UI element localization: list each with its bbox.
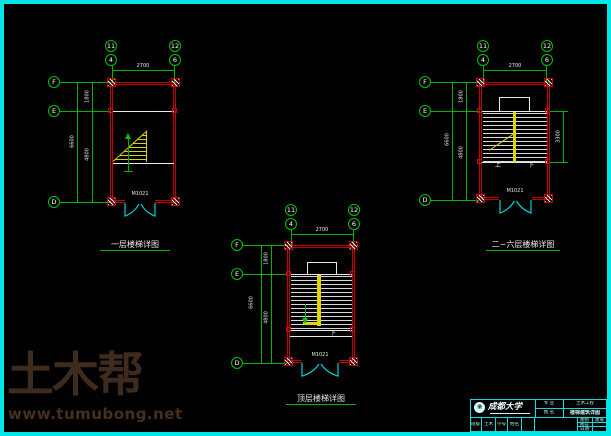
dimension-line — [550, 111, 568, 112]
column-hatch — [284, 241, 293, 250]
field-value: 土木工程 — [564, 401, 606, 406]
grid-line — [243, 274, 287, 275]
door-tag: M1021 — [307, 353, 333, 358]
dimension-line — [291, 234, 354, 235]
dimension-line — [483, 70, 547, 71]
grid-bubble-4: 4 — [105, 54, 117, 66]
column-marker — [172, 108, 177, 113]
grid-bubble-4: 4 — [477, 54, 489, 66]
grid-bubble-F: F — [48, 76, 60, 88]
title-block-line — [521, 417, 522, 431]
watermark-brand: 土木帮 — [7, 352, 142, 400]
column-marker — [286, 327, 291, 332]
dimension-text: 2700 — [309, 228, 335, 233]
stair-edge — [146, 131, 147, 162]
direction-tick — [124, 171, 133, 172]
dimension-chain — [271, 245, 272, 363]
grid-line — [60, 202, 110, 203]
grid-bubble-E: E — [231, 268, 243, 280]
landing-edge — [482, 162, 547, 163]
dimension-chain — [77, 82, 78, 202]
cad-sheet: 11 12 4 6 2700 F E D 1800 6600 4800 — [0, 0, 611, 436]
grid-bubble-6: 6 — [541, 54, 553, 66]
dimension-line — [112, 70, 175, 71]
dimension-text: 4800 — [265, 310, 270, 326]
dimension-text: 1800 — [265, 251, 270, 267]
dimension-text: 1800 — [86, 89, 91, 105]
dimension-text: 6600 — [250, 295, 255, 311]
grid-line — [243, 245, 287, 246]
grid-bubble-6: 6 — [348, 218, 360, 230]
column-hatch — [284, 357, 293, 366]
grid-line — [431, 200, 479, 201]
landing-edge — [113, 163, 174, 164]
grid-bubble-11: 11 — [285, 204, 297, 216]
dimension-text: 1800 — [460, 89, 465, 105]
watermark-url: www.tumubong.net — [8, 406, 183, 422]
column-hatch — [476, 194, 485, 203]
double-door-icon — [301, 363, 339, 380]
grid-bubble-4: 4 — [285, 218, 297, 230]
double-door-icon — [124, 203, 156, 220]
dimension-text: 2700 — [502, 64, 528, 69]
grid-bubble-6: 6 — [169, 54, 181, 66]
column-hatch — [171, 78, 180, 87]
grid-line — [431, 82, 479, 83]
landing-edge — [290, 330, 352, 331]
grid-bubble-E: E — [419, 105, 431, 117]
grid-bubble-F: F — [419, 76, 431, 88]
university-name: 成都大学 — [488, 402, 534, 412]
landing-edge — [290, 274, 352, 275]
dimension-text: 2700 — [130, 64, 156, 69]
column-marker — [477, 159, 482, 164]
grid-line — [60, 82, 110, 83]
bottom-cell: 土木 — [482, 422, 495, 427]
grid-bubble-E: E — [48, 105, 60, 117]
grid-bubble-D: D — [48, 196, 60, 208]
column-marker — [545, 108, 550, 113]
corner-label: 日期 — [578, 427, 591, 432]
field-label: 图 名 — [536, 410, 562, 415]
dimension-text: 6600 — [71, 134, 76, 150]
up-arrow-icon — [125, 133, 131, 139]
column-marker — [350, 271, 355, 276]
dimension-line — [550, 162, 568, 163]
field-value: 楼梯建筑详图 — [564, 410, 606, 416]
direction-line — [128, 138, 129, 171]
column-hatch — [349, 241, 358, 250]
door-tag: M1021 — [502, 189, 528, 194]
grid-line — [243, 363, 287, 364]
up-label: 上 — [495, 163, 501, 169]
grid-bubble-D: D — [231, 357, 243, 369]
dimension-text: 6600 — [446, 132, 451, 148]
grid-bubble-11: 11 — [477, 40, 489, 52]
stair-well-outline — [499, 97, 530, 112]
grid-bubble-11: 11 — [105, 40, 117, 52]
down-label: 下 — [528, 163, 534, 169]
dimension-chain — [261, 245, 262, 363]
drawing-caption: 一层楼梯详图 — [100, 240, 170, 251]
column-hatch — [476, 78, 485, 87]
column-hatch — [544, 78, 553, 87]
landing-edge — [113, 111, 174, 112]
dimension-chain — [92, 82, 93, 202]
grid-bubble-D: D — [419, 194, 431, 206]
grid-bubble-12: 12 — [169, 40, 181, 52]
down-label: 下 — [330, 331, 336, 337]
grid-line — [431, 111, 479, 112]
dimension-chain — [466, 82, 467, 200]
down-arrow-icon — [302, 318, 308, 324]
university-logo-icon: ❀ — [474, 402, 485, 413]
title-block-line — [534, 417, 535, 431]
bottom-cell: 班级 — [470, 422, 481, 427]
column-hatch — [349, 357, 358, 366]
column-marker — [545, 159, 550, 164]
double-door-icon — [499, 200, 532, 217]
column-hatch — [107, 78, 116, 87]
bottom-cell: 学号 — [496, 422, 507, 427]
corner-value: 建施 — [593, 418, 606, 423]
grid-bubble-12: 12 — [541, 40, 553, 52]
column-hatch — [544, 194, 553, 203]
dimension-text: 3300 — [557, 129, 562, 145]
field-label: 专 业 — [536, 401, 562, 406]
column-marker — [286, 271, 291, 276]
column-marker — [350, 327, 355, 332]
dimension-text: 4800 — [86, 147, 91, 163]
grid-bubble-12: 12 — [348, 204, 360, 216]
bottom-cell: 姓名 — [508, 422, 521, 427]
landing-edge — [290, 336, 352, 337]
grid-bubble-F: F — [231, 239, 243, 251]
door-tag: M1021 — [127, 192, 153, 197]
stair-railing — [513, 112, 516, 162]
grid-line — [60, 111, 110, 112]
dimension-text: 4800 — [460, 145, 465, 161]
column-marker — [108, 108, 113, 113]
column-marker — [477, 108, 482, 113]
stair-flight — [291, 276, 352, 330]
stair-railing — [317, 275, 321, 326]
column-hatch — [107, 197, 116, 206]
column-hatch — [171, 197, 180, 206]
drawing-caption: 二~六层楼梯详图 — [486, 240, 560, 251]
title-block-line — [535, 408, 607, 409]
dimension-chain — [563, 111, 564, 162]
signature-flourish — [490, 413, 530, 414]
drawing-caption: 顶层楼梯详图 — [286, 394, 356, 405]
dimension-chain — [452, 82, 453, 200]
